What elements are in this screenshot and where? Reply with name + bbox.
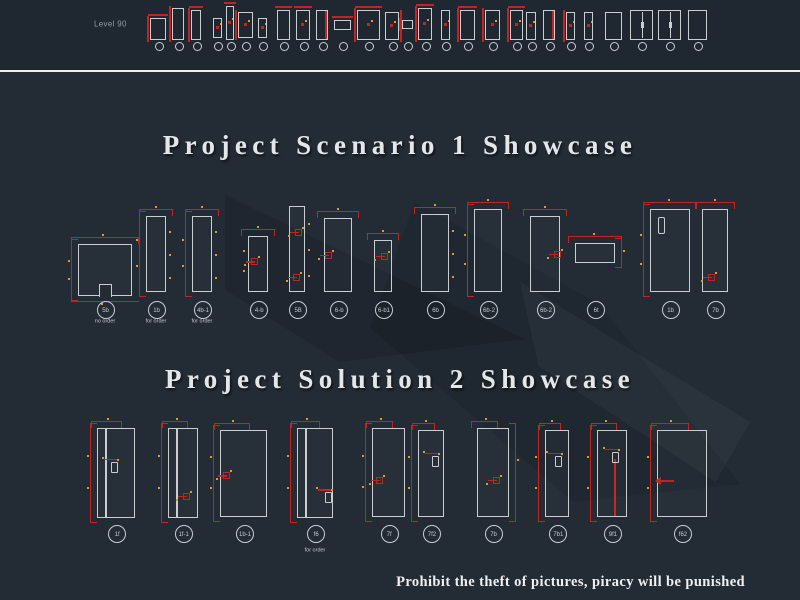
- section-title-solution-2: Project Solution 2 Showcase: [0, 364, 800, 395]
- section-title-scenario-1: Project Scenario 1 Showcase: [0, 130, 800, 161]
- piracy-warning-text: Prohibit the theft of pictures, piracy w…: [396, 574, 745, 591]
- cad-sheet-canvas: Level 90 Project Scenario 1 Showcase Pro…: [0, 0, 800, 600]
- door-schedule-strip: Level 90: [0, 0, 800, 70]
- level-label: Level 90: [94, 20, 127, 29]
- watermark-shape: [225, 172, 525, 362]
- watermark-shape: [370, 202, 740, 502]
